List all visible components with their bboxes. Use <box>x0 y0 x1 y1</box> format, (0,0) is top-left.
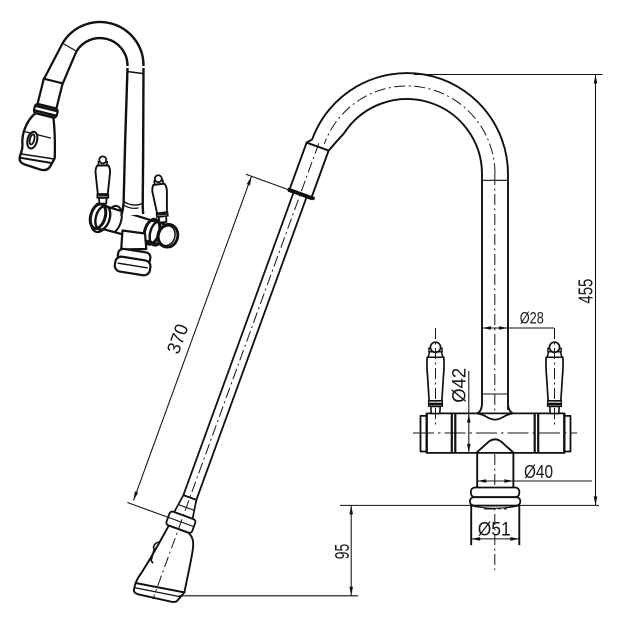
svg-text:Ø28: Ø28 <box>520 309 544 328</box>
svg-text:455: 455 <box>576 279 598 304</box>
svg-text:Ø42: Ø42 <box>450 368 471 403</box>
svg-text:Ø40: Ø40 <box>524 461 553 482</box>
svg-text:95: 95 <box>331 544 354 560</box>
svg-text:Ø51: Ø51 <box>478 519 511 540</box>
